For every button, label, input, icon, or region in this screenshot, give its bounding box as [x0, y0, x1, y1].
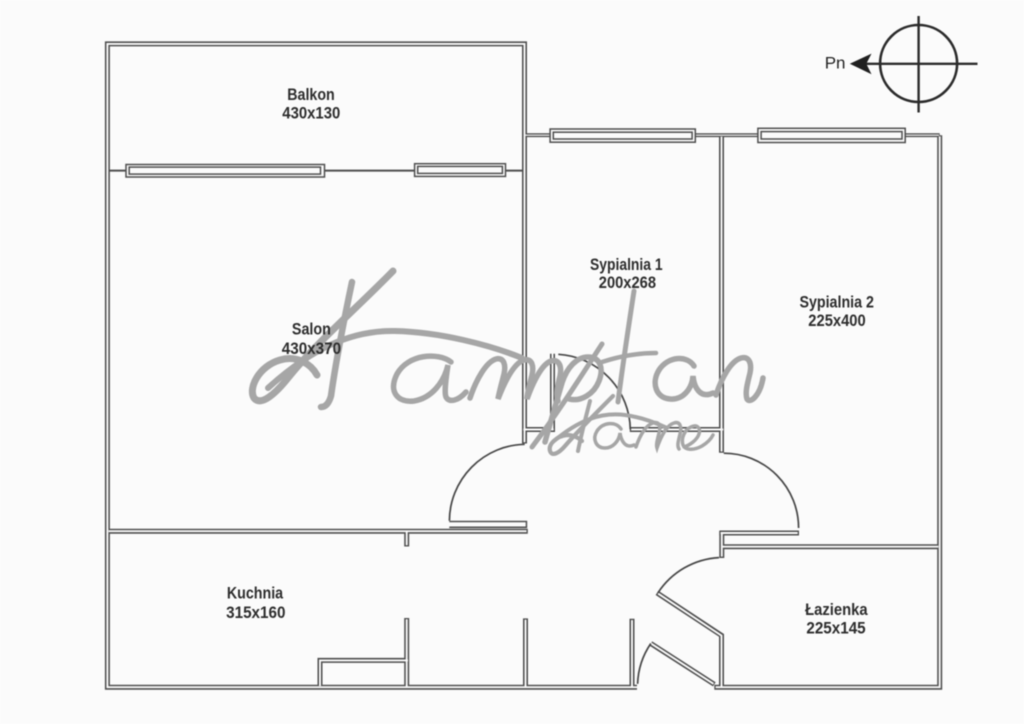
svg-text:225x400: 225x400 — [808, 311, 865, 330]
svg-text:Łazienka: Łazienka — [805, 600, 868, 619]
svg-text:Balkon: Balkon — [287, 85, 335, 104]
svg-text:Sypialnia 2: Sypialnia 2 — [799, 293, 874, 312]
svg-text:Kuchnia: Kuchnia — [227, 584, 284, 603]
svg-text:430x370: 430x370 — [282, 339, 341, 358]
svg-text:225x145: 225x145 — [806, 618, 865, 637]
svg-text:430x130: 430x130 — [282, 103, 340, 122]
svg-text:Salon: Salon — [292, 319, 331, 338]
svg-text:Pn: Pn — [825, 54, 846, 73]
svg-text:315x160: 315x160 — [226, 603, 285, 622]
svg-text:200x268: 200x268 — [599, 273, 656, 292]
svg-text:Sypialnia 1: Sypialnia 1 — [590, 255, 663, 274]
